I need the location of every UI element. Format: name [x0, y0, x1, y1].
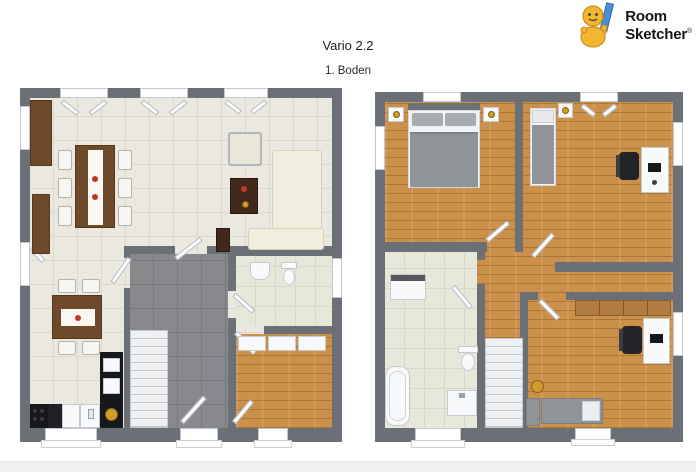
oven [103, 358, 120, 372]
dining-chair [58, 178, 72, 198]
desk [641, 147, 669, 193]
wall [515, 102, 523, 252]
microwave [103, 378, 120, 394]
wash-basin [447, 390, 477, 416]
duvet [532, 125, 554, 184]
window [332, 258, 342, 298]
wall [375, 92, 683, 102]
decor-bowl [105, 408, 118, 421]
wall [566, 292, 673, 300]
wardrobe [575, 300, 671, 316]
wall [555, 262, 673, 272]
coffee-table [230, 178, 258, 214]
table-lamp [393, 111, 400, 118]
window [580, 92, 618, 102]
toilet [461, 353, 475, 371]
cabinet [32, 194, 50, 254]
washing-machine [390, 274, 426, 300]
staircase [485, 338, 523, 428]
window [60, 88, 108, 98]
kitchen-counter [48, 404, 62, 428]
dining-chair [82, 279, 100, 293]
dining-chair [58, 341, 76, 355]
armchair [228, 132, 262, 166]
wall [228, 246, 236, 291]
dining-chair [58, 279, 76, 293]
tv-cabinet [216, 228, 230, 252]
dining-chair [82, 341, 100, 355]
floor-plan-page: Vario 2.2 1. Boden Room Sketcher® [0, 0, 696, 472]
window [375, 126, 385, 170]
window [20, 242, 30, 286]
wall [477, 252, 485, 260]
window [140, 88, 188, 98]
floor-plan-left [20, 86, 342, 458]
staircase [130, 330, 168, 428]
duvet [410, 132, 478, 187]
dining-chair [118, 206, 132, 226]
dresser [526, 398, 540, 426]
floor-lamp [531, 380, 544, 393]
bed-headboard [408, 103, 480, 110]
bed [541, 398, 603, 424]
page-bottom-strip [0, 461, 696, 472]
pillow [445, 113, 476, 126]
wardrobe [238, 336, 266, 351]
toilet-tank [281, 262, 297, 269]
dining-table [75, 145, 115, 228]
cabinet [30, 100, 52, 166]
wash-basin [250, 262, 270, 280]
dining-chair [58, 206, 72, 226]
door-sill [254, 440, 292, 448]
sofa-chaise [248, 228, 324, 250]
office-chair [622, 326, 642, 354]
table-lamp [488, 111, 495, 118]
window [423, 92, 461, 102]
door-sill [176, 440, 222, 448]
floor-plan-right [375, 86, 683, 458]
wall [477, 284, 485, 428]
door-sill [411, 440, 465, 448]
roomsketcher-logo: Room Sketcher® [579, 2, 692, 48]
pillow [582, 401, 600, 421]
window [673, 312, 683, 356]
window-sill [571, 439, 615, 446]
table-lamp [562, 107, 569, 114]
wardrobe [268, 336, 296, 351]
dining-chair [118, 178, 132, 198]
toilet [283, 269, 295, 285]
wall [385, 242, 487, 252]
window [224, 88, 268, 98]
door-sill [41, 440, 101, 448]
wall [528, 292, 538, 300]
window [673, 122, 683, 166]
kitchen-sink [80, 404, 100, 428]
toilet-tank [458, 346, 478, 353]
wall [130, 246, 175, 254]
wardrobe [298, 336, 326, 351]
stove [30, 404, 48, 428]
laptop [650, 334, 663, 343]
desk [643, 318, 670, 364]
office-chair [619, 152, 639, 180]
wall [264, 326, 332, 334]
pillow [412, 113, 443, 126]
roomsketcher-mascot-icon [579, 2, 621, 48]
kitchen-cabinet [62, 404, 80, 428]
roomsketcher-wordmark: Room Sketcher® [625, 9, 692, 42]
laptop [648, 163, 661, 172]
dining-chair [58, 150, 72, 170]
window [20, 106, 30, 150]
pillow [532, 110, 554, 123]
bathtub [385, 366, 410, 426]
floor-label: 1. Boden [0, 65, 696, 77]
small-dining-table [52, 295, 102, 339]
dining-chair [118, 150, 132, 170]
